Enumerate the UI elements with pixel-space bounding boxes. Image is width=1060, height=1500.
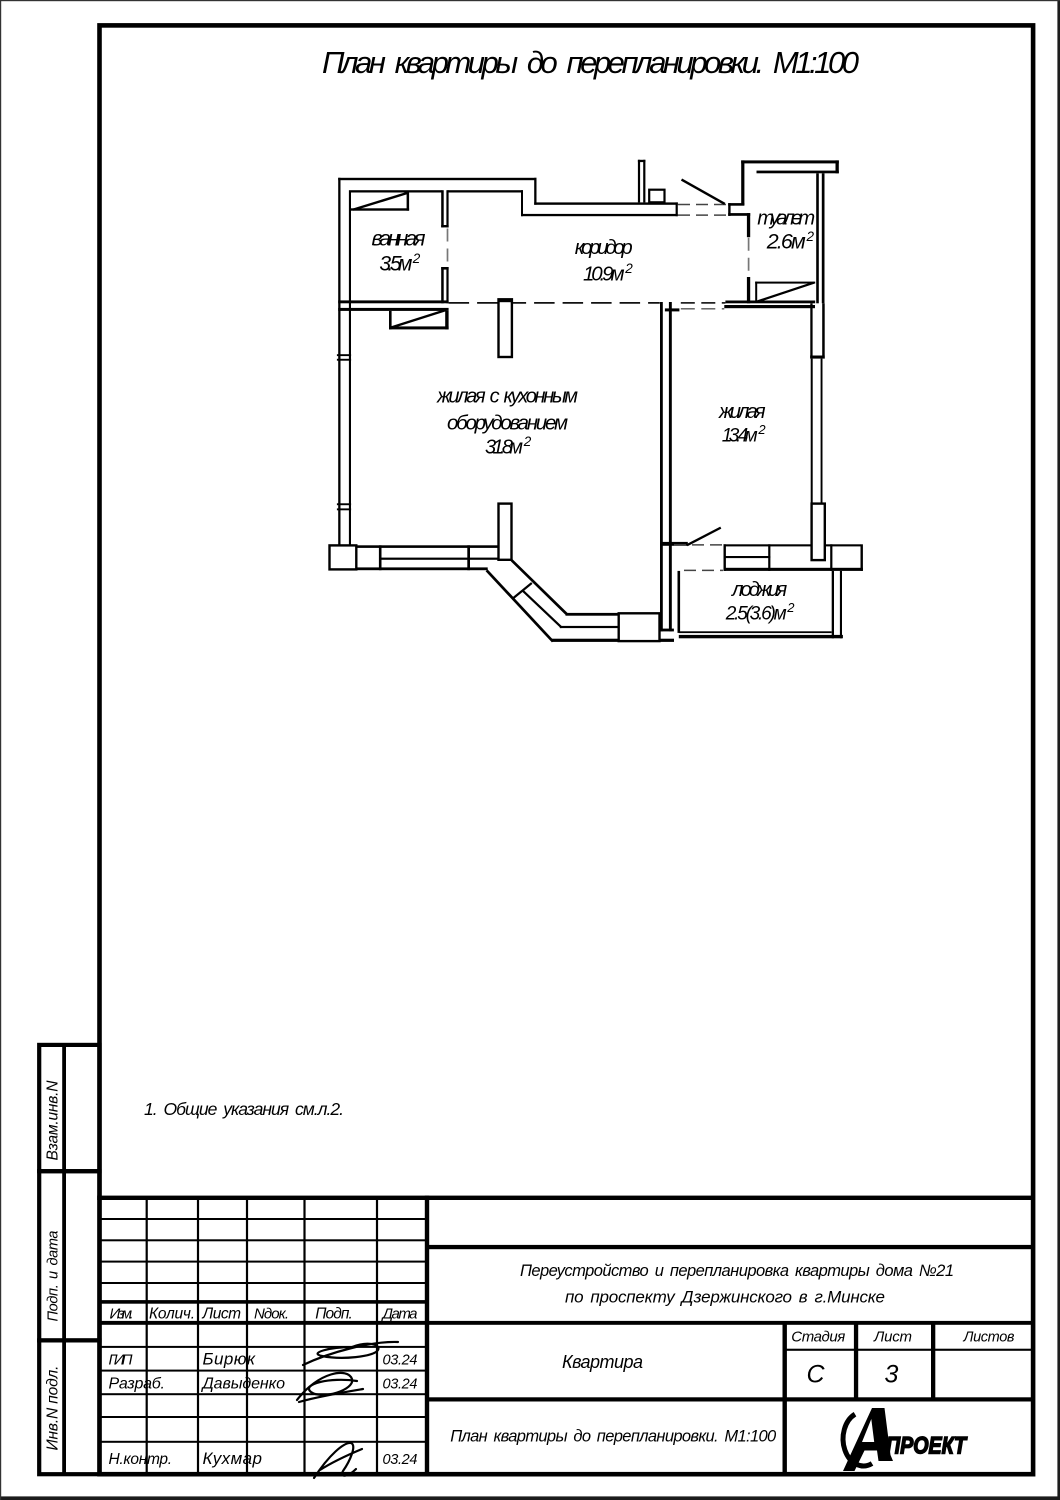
svg-text:03.24: 03.24 — [383, 1353, 418, 1369]
svg-text:Бирюк: Бирюк — [203, 1350, 256, 1369]
svg-text:Изм.: Изм. — [110, 1306, 134, 1323]
svg-text:Квартира: Квартира — [562, 1352, 643, 1372]
svg-text:Разраб.: Разраб. — [109, 1376, 166, 1393]
svg-text:2: 2 — [786, 600, 795, 615]
svg-text:Стадия: Стадия — [791, 1329, 845, 1346]
svg-text:Н.контр.: Н.контр. — [109, 1451, 173, 1468]
svg-text:Инв.N подл.: Инв.N подл. — [45, 1366, 62, 1451]
svg-text:жилая с кухонным: жилая с кухонным — [436, 386, 578, 408]
svg-text:3: 3 — [885, 1361, 899, 1389]
svg-text:жилая: жилая — [718, 401, 766, 423]
svg-text:2: 2 — [624, 261, 633, 276]
svg-text:по проспекту Дзержинского в г.: по проспекту Дзержинского в г.Минске — [565, 1288, 885, 1307]
svg-text:оборудованием: оборудованием — [447, 412, 568, 435]
svg-text:Давыденко: Давыденко — [201, 1376, 286, 1393]
svg-text:План квартиры до перепланировк: План квартиры до перепланировки. М1:100 — [322, 45, 859, 80]
svg-text:Листов: Листов — [963, 1330, 1015, 1346]
svg-text:Лист: Лист — [873, 1329, 912, 1346]
svg-text:2: 2 — [806, 229, 815, 244]
svg-text:2.5(3.6)м: 2.5(3.6)м — [725, 604, 787, 625]
svg-text:Подп.: Подп. — [315, 1306, 353, 1323]
svg-text:Кухмар: Кухмар — [203, 1449, 263, 1468]
svg-text:2.6м: 2.6м — [766, 229, 806, 253]
svg-text:03.24: 03.24 — [383, 1377, 418, 1393]
svg-text:Взам.инв.N: Взам.инв.N — [45, 1080, 62, 1161]
svg-text:2: 2 — [757, 422, 766, 437]
svg-text:Лист: Лист — [202, 1306, 242, 1323]
svg-text:Переустройство и перепланировк: Переустройство и перепланировка квартиры… — [520, 1262, 954, 1280]
svg-text:1. Общие указания см.л.2.: 1. Общие указания см.л.2. — [144, 1099, 344, 1119]
svg-text:13.4м: 13.4м — [722, 426, 758, 447]
svg-text:С: С — [806, 1361, 825, 1389]
svg-text:лоджия: лоджия — [731, 579, 787, 601]
svg-text:План квартиры до перепланировк: План квартиры до перепланировки. М1:100 — [450, 1428, 777, 1446]
svg-text:10.9м: 10.9м — [583, 263, 625, 286]
svg-text:2: 2 — [412, 251, 421, 266]
svg-text:ПРОЕКТ: ПРОЕКТ — [886, 1433, 968, 1460]
svg-text:ГИП: ГИП — [109, 1352, 133, 1369]
svg-text:2: 2 — [523, 434, 532, 449]
svg-text:Дата: Дата — [381, 1306, 418, 1323]
svg-text:Подп. и дата: Подп. и дата — [46, 1231, 62, 1322]
svg-text:31.8м: 31.8м — [485, 437, 523, 459]
svg-text:03.24: 03.24 — [383, 1452, 418, 1468]
svg-text:Nдок.: Nдок. — [254, 1306, 289, 1323]
svg-text:коридор: коридор — [575, 237, 633, 259]
svg-text:Колич.: Колич. — [149, 1306, 195, 1323]
svg-text:3.5м: 3.5м — [379, 253, 412, 276]
svg-text:ванная: ванная — [372, 227, 427, 251]
svg-text:туалет: туалет — [757, 208, 815, 230]
